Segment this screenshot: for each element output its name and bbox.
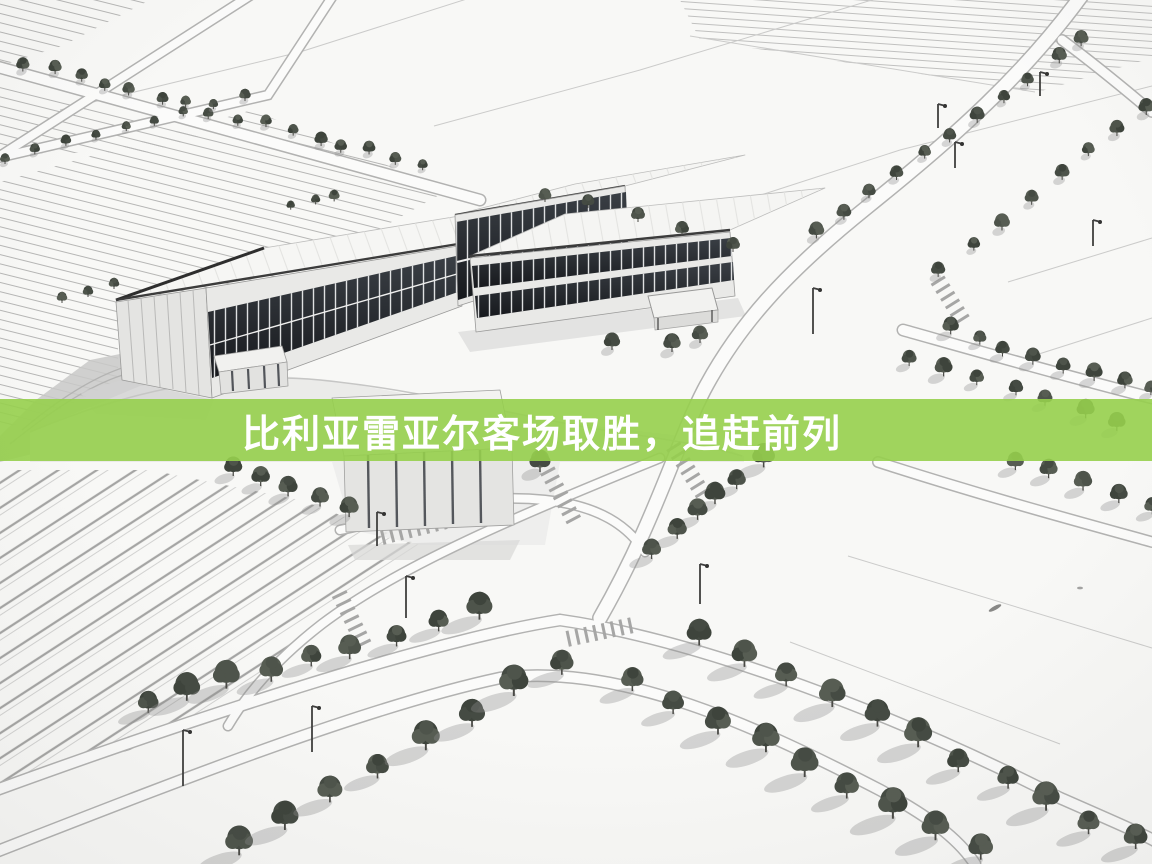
headline-banner: 比利亚雷亚尔客场取胜，追赶前列 <box>0 399 1152 461</box>
headline-text: 比利亚雷亚尔客场取胜，追赶前列 <box>242 403 842 458</box>
article-hero-image: 比利亚雷亚尔客场取胜，追赶前列 <box>0 0 1152 864</box>
